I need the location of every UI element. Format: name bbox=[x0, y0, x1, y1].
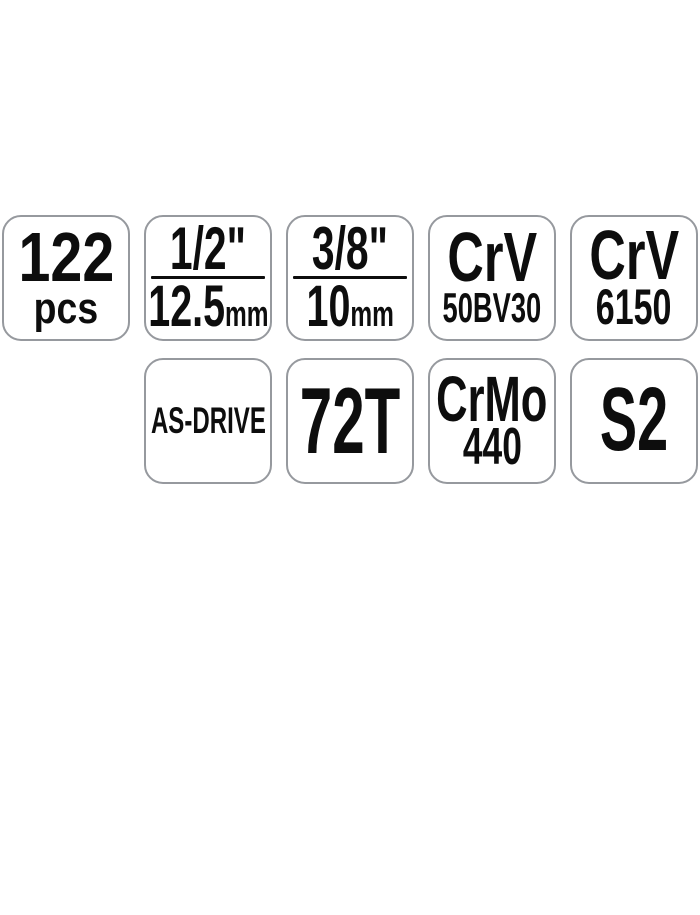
drive-size-mm-value: 10 bbox=[306, 274, 350, 339]
badge-72t: 72T bbox=[286, 358, 414, 484]
material-name: CrV bbox=[447, 231, 537, 284]
badge-pieces: 122 pcs bbox=[2, 215, 130, 341]
material-name: S2 bbox=[600, 387, 668, 455]
badge-crv-6150: CrV 6150 bbox=[570, 215, 698, 341]
drive-size-mm-unit: mm bbox=[225, 293, 268, 334]
badge-s2: S2 bbox=[570, 358, 698, 484]
material-grade: 50BV30 bbox=[443, 292, 542, 325]
drive-size-mm-value: 12.5 bbox=[148, 274, 225, 339]
drive-size-mm-unit: mm bbox=[350, 293, 393, 334]
badge-crv-50bv30: CrV 50BV30 bbox=[428, 215, 556, 341]
product-spec-infographic: 122 pcs 1/2" 12.5mm 3/8" 10mm CrV 50BV30… bbox=[0, 215, 700, 915]
drive-size-metric: 10mm bbox=[306, 284, 393, 329]
badge-drive-1-2: 1/2" 12.5mm bbox=[144, 215, 272, 341]
badge-crmo-440: CrMo 440 bbox=[428, 358, 556, 484]
badge-grid: 122 pcs 1/2" 12.5mm 3/8" 10mm CrV 50BV30… bbox=[2, 215, 698, 484]
material-name: CrMo bbox=[436, 375, 547, 423]
drive-size-inch: 1/2" bbox=[170, 226, 246, 271]
material-grade: 6150 bbox=[596, 288, 672, 327]
badge-as-drive: AS-DRIVE bbox=[144, 358, 272, 484]
as-drive-label: AS-DRIVE bbox=[151, 407, 266, 435]
drive-size-inch: 3/8" bbox=[312, 226, 388, 271]
material-grade: 440 bbox=[462, 427, 521, 468]
piece-count-unit: pcs bbox=[34, 292, 98, 325]
piece-count: 122 bbox=[18, 231, 114, 284]
teeth-count: 72T bbox=[300, 386, 400, 457]
drive-size-metric: 12.5mm bbox=[148, 284, 268, 329]
material-name: CrV bbox=[589, 229, 679, 282]
badge-drive-3-8: 3/8" 10mm bbox=[286, 215, 414, 341]
